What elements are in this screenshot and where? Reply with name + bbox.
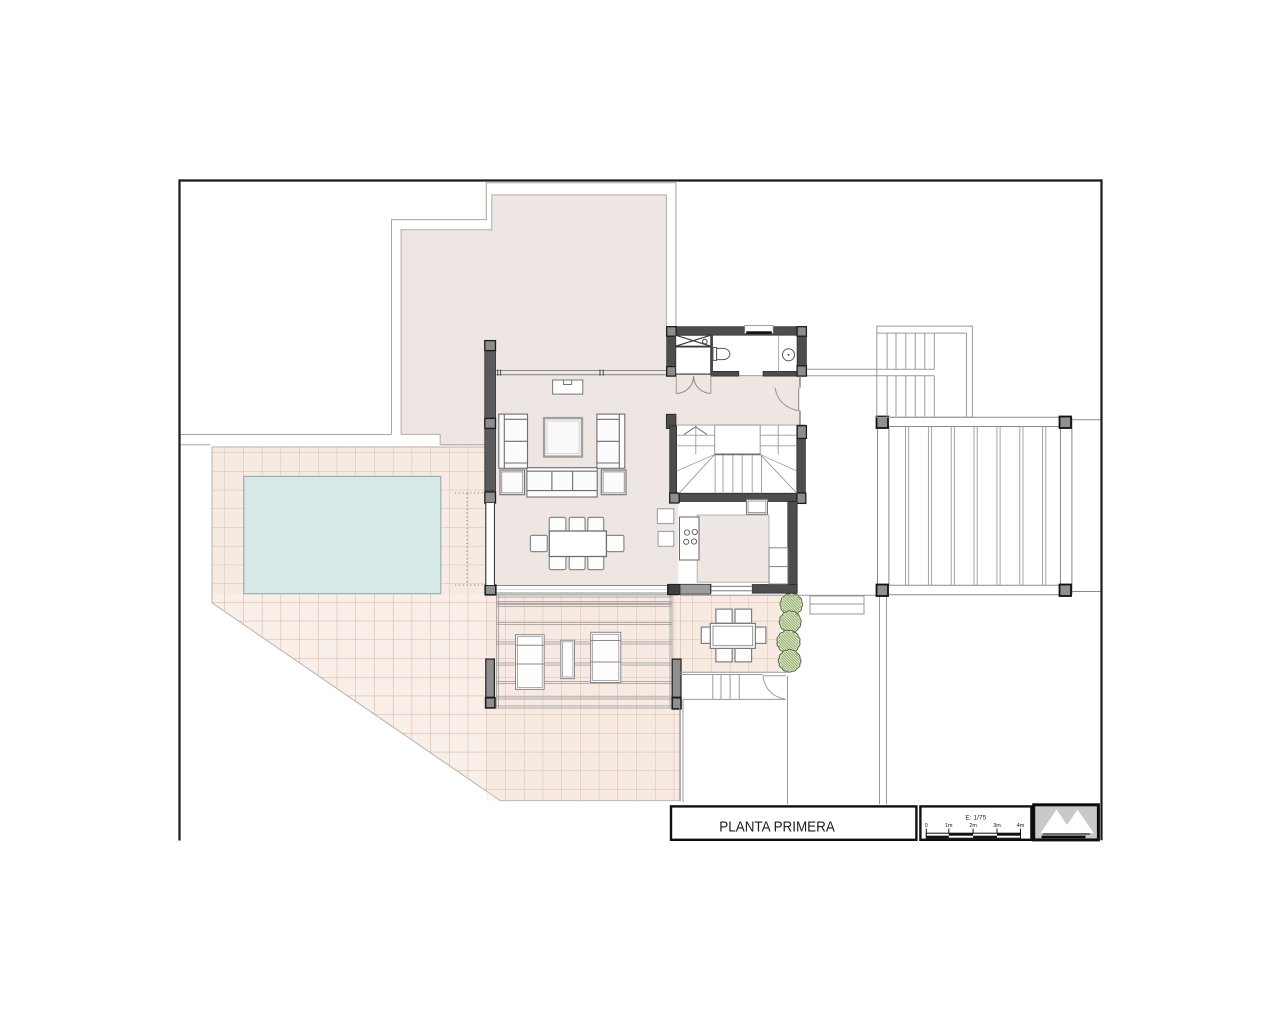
svg-text:2m: 2m bbox=[969, 823, 977, 829]
svg-text:PLANTA PRIMERA: PLANTA PRIMERA bbox=[719, 818, 835, 835]
svg-text:3m: 3m bbox=[993, 823, 1001, 829]
svg-text:4m: 4m bbox=[1017, 823, 1025, 829]
svg-text:0: 0 bbox=[925, 823, 928, 829]
svg-text:E: 1/75: E: 1/75 bbox=[965, 815, 986, 822]
svg-text:1m: 1m bbox=[945, 823, 953, 829]
